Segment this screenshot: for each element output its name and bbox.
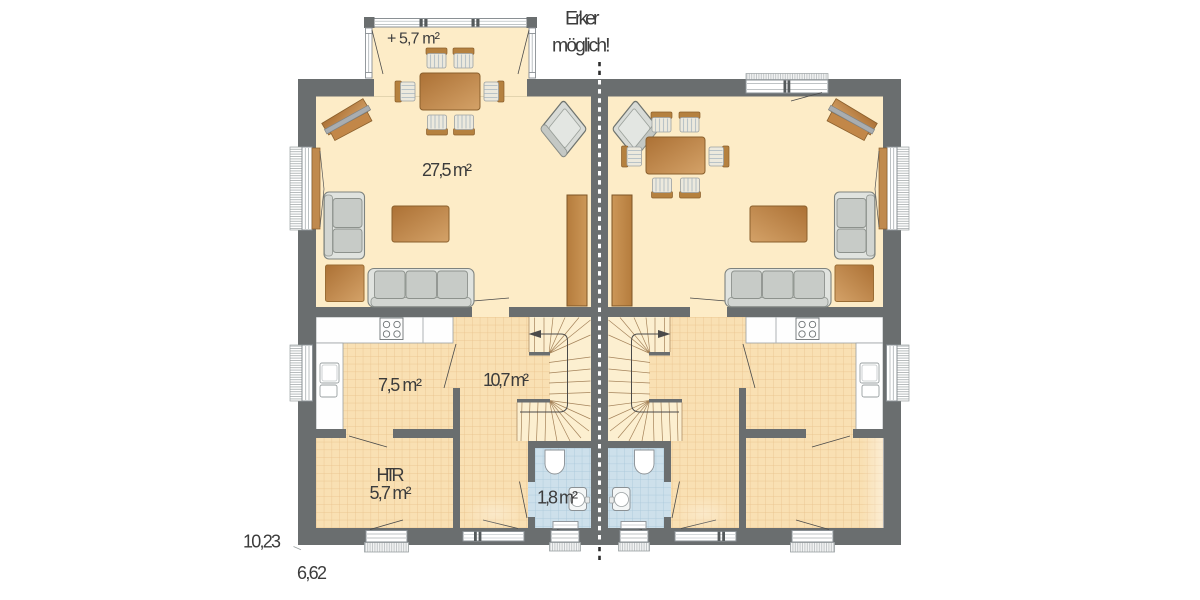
svg-text:27,5 m²: 27,5 m² xyxy=(422,160,472,180)
svg-text:7,5 m²: 7,5 m² xyxy=(378,375,422,395)
svg-text:10,23: 10,23 xyxy=(243,532,281,552)
svg-text:5,7 m²: 5,7 m² xyxy=(370,483,412,503)
svg-text:1,8 m²: 1,8 m² xyxy=(537,488,578,508)
svg-text:10,7 m²: 10,7 m² xyxy=(483,370,529,390)
svg-text:6,62: 6,62 xyxy=(297,563,327,583)
svg-text:möglich!: möglich! xyxy=(552,35,611,57)
svg-text:Erker: Erker xyxy=(565,8,600,30)
svg-text:+ 5,7 m²: + 5,7 m² xyxy=(387,31,441,48)
svg-text:HTR: HTR xyxy=(377,465,405,485)
